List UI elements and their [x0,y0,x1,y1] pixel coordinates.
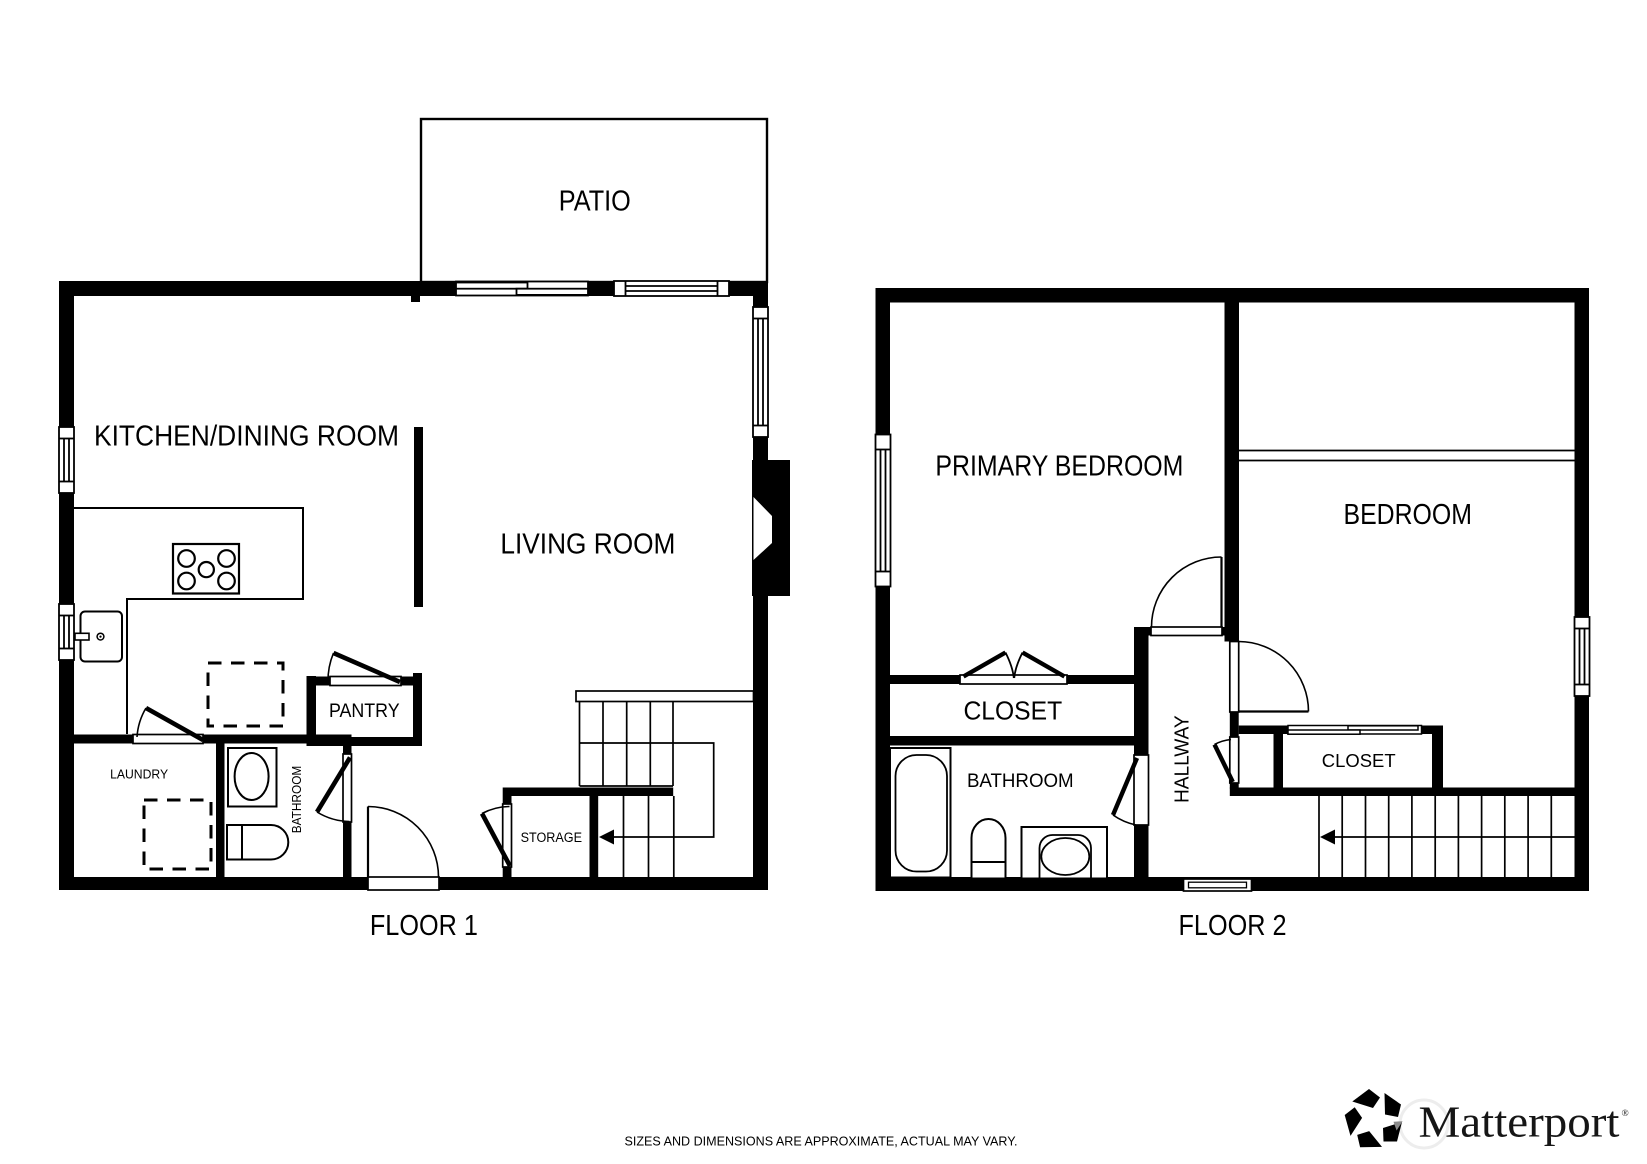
svg-text:CLOSET: CLOSET [963,696,1062,726]
svg-text:Matterport: Matterport [1419,1097,1620,1146]
svg-text:LIVING ROOM: LIVING ROOM [500,529,675,561]
svg-text:STORAGE: STORAGE [521,830,582,845]
svg-text:FLOOR 1: FLOOR 1 [370,910,478,942]
svg-text:®: ® [1622,1108,1629,1119]
svg-text:SIZES AND DIMENSIONS ARE APPRO: SIZES AND DIMENSIONS ARE APPROXIMATE, AC… [625,1134,1018,1149]
svg-text:BATHROOM: BATHROOM [290,766,304,834]
svg-text:BATHROOM: BATHROOM [967,770,1074,792]
svg-text:KITCHEN/DINING ROOM: KITCHEN/DINING ROOM [94,421,399,453]
svg-text:HALLWAY: HALLWAY [1171,715,1194,803]
svg-text:PATIO: PATIO [559,185,631,217]
svg-text:PANTRY: PANTRY [329,701,400,722]
svg-text:PRIMARY BEDROOM: PRIMARY BEDROOM [935,451,1183,483]
svg-text:LAUNDRY: LAUNDRY [110,766,168,781]
svg-text:CLOSET: CLOSET [1322,751,1396,771]
svg-text:FLOOR 2: FLOOR 2 [1179,910,1287,942]
svg-text:BEDROOM: BEDROOM [1344,499,1472,531]
